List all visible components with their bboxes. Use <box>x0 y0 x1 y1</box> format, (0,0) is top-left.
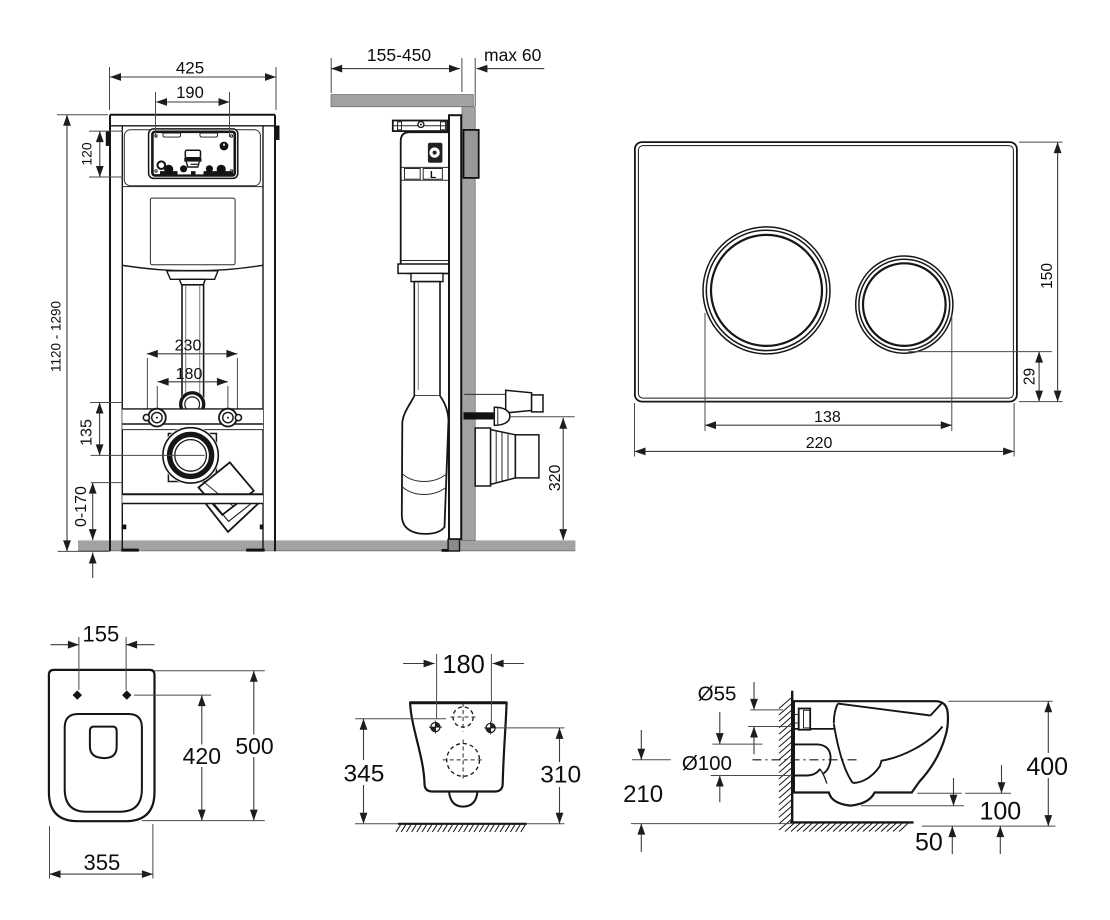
svg-text:190: 190 <box>176 84 204 102</box>
svg-text:500: 500 <box>235 733 273 759</box>
svg-text:155-450: 155-450 <box>367 45 431 65</box>
svg-text:320: 320 <box>547 464 564 491</box>
svg-text:Ø55: Ø55 <box>698 683 737 706</box>
svg-text:345: 345 <box>344 760 385 787</box>
svg-text:120: 120 <box>79 142 95 166</box>
svg-text:1120 - 1290: 1120 - 1290 <box>49 301 64 372</box>
svg-text:425: 425 <box>176 59 204 78</box>
svg-text:max 60: max 60 <box>484 45 542 65</box>
svg-text:420: 420 <box>183 743 221 769</box>
svg-text:230: 230 <box>175 338 202 355</box>
svg-text:180: 180 <box>176 366 203 383</box>
svg-text:355: 355 <box>84 850 121 875</box>
svg-text:L: L <box>430 170 436 181</box>
svg-text:135: 135 <box>79 419 96 446</box>
svg-text:155: 155 <box>83 622 120 647</box>
svg-text:210: 210 <box>623 781 663 808</box>
svg-text:100: 100 <box>979 797 1021 825</box>
svg-text:220: 220 <box>806 435 833 452</box>
svg-text:0-170: 0-170 <box>73 486 90 527</box>
svg-text:180: 180 <box>442 651 485 679</box>
svg-text:150: 150 <box>1039 263 1056 289</box>
svg-text:400: 400 <box>1026 753 1068 781</box>
svg-text:29: 29 <box>1022 368 1039 385</box>
svg-text:Ø100: Ø100 <box>682 752 732 775</box>
svg-text:50: 50 <box>915 828 943 856</box>
svg-text:138: 138 <box>814 409 841 426</box>
svg-text:310: 310 <box>540 762 581 789</box>
